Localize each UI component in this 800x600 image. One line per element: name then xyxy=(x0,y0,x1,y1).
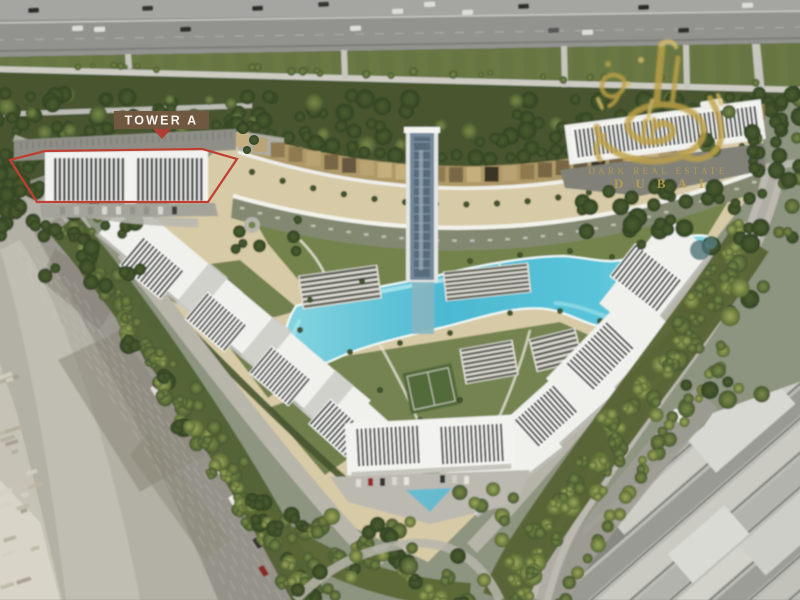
svg-text:DUBAI: DUBAI xyxy=(614,176,716,191)
svg-text:DARK REAL ESTATE: DARK REAL ESTATE xyxy=(588,166,727,176)
svg-text:TOWER A: TOWER A xyxy=(125,114,199,128)
